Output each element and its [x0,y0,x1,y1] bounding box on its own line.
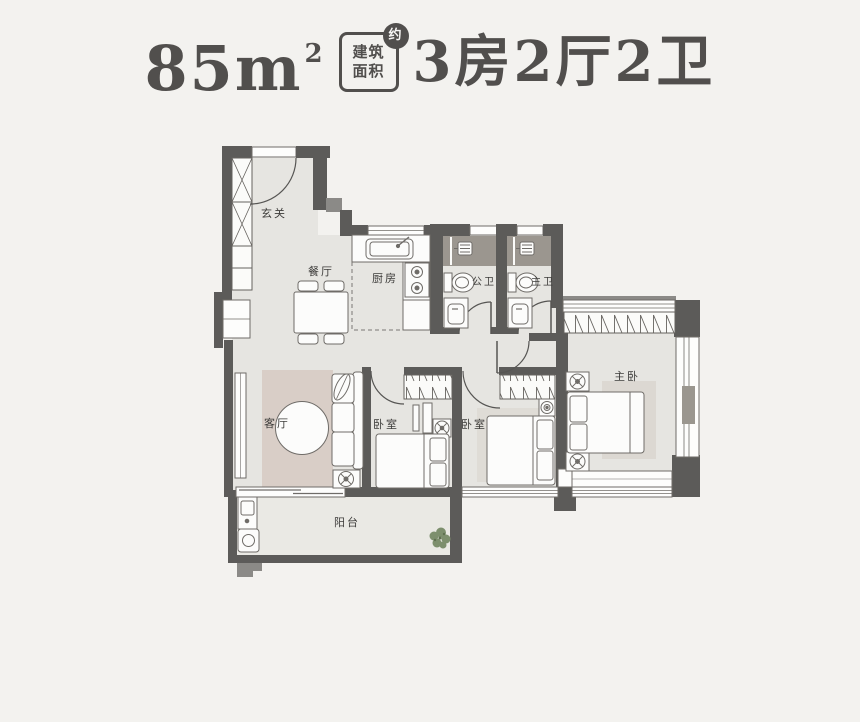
lamp-icon [570,454,585,469]
toilet-icon [508,273,516,292]
label-public-bath: 公卫 [472,277,496,288]
label-master-bath: 主卫 [531,276,555,288]
master-bottom-window [572,487,672,497]
label-entry: 玄关 [261,206,287,220]
label-living: 客厅 [264,416,290,430]
dining-chair [324,334,344,344]
lamp-icon [570,374,585,389]
label-dining: 餐厅 [308,264,334,278]
floor-plan-canvas: 玄关 餐厅 厨房 公卫 主卫 客厅 卧室 卧室 主卧 阳台 [0,0,860,722]
public-bath-window [470,226,499,235]
sofa-cushion [332,432,354,466]
sofa-cushion [332,403,354,432]
pillow [537,451,553,480]
lamp-icon [339,472,354,487]
master-top-window [563,300,675,312]
lamp-icon [435,421,449,435]
toilet-icon [444,273,452,292]
pillow [537,420,553,449]
balcony-fixtures [238,497,259,552]
floorplan-page: 85m2 建筑 面积 约 3房2厅2卫 [0,0,860,722]
pillow [430,463,446,486]
bedroom2-wardrobe [500,375,555,399]
label-bedroom1: 卧室 [373,417,399,431]
dining-chair [298,281,318,291]
master-bath-window [517,226,543,235]
desk [423,403,432,433]
entry-door-sill [252,147,296,157]
lamp-icon [541,402,553,414]
master-wardrobe [564,312,675,333]
balcony-step [237,563,262,577]
label-bedroom2: 卧室 [461,417,487,431]
label-master-bedroom: 主卧 [614,370,640,383]
pillow [570,396,587,422]
label-balcony: 阳台 [334,515,360,529]
label-kitchen: 厨房 [372,272,398,285]
dining-chair [324,281,344,291]
balcony-sliding-door [236,487,345,497]
bedroom2-window [462,487,558,497]
pillow [430,438,446,461]
bedroom1-wardrobe [404,375,452,399]
dining-chair [298,334,318,344]
pillow [570,424,587,450]
desk-chair [413,405,419,431]
